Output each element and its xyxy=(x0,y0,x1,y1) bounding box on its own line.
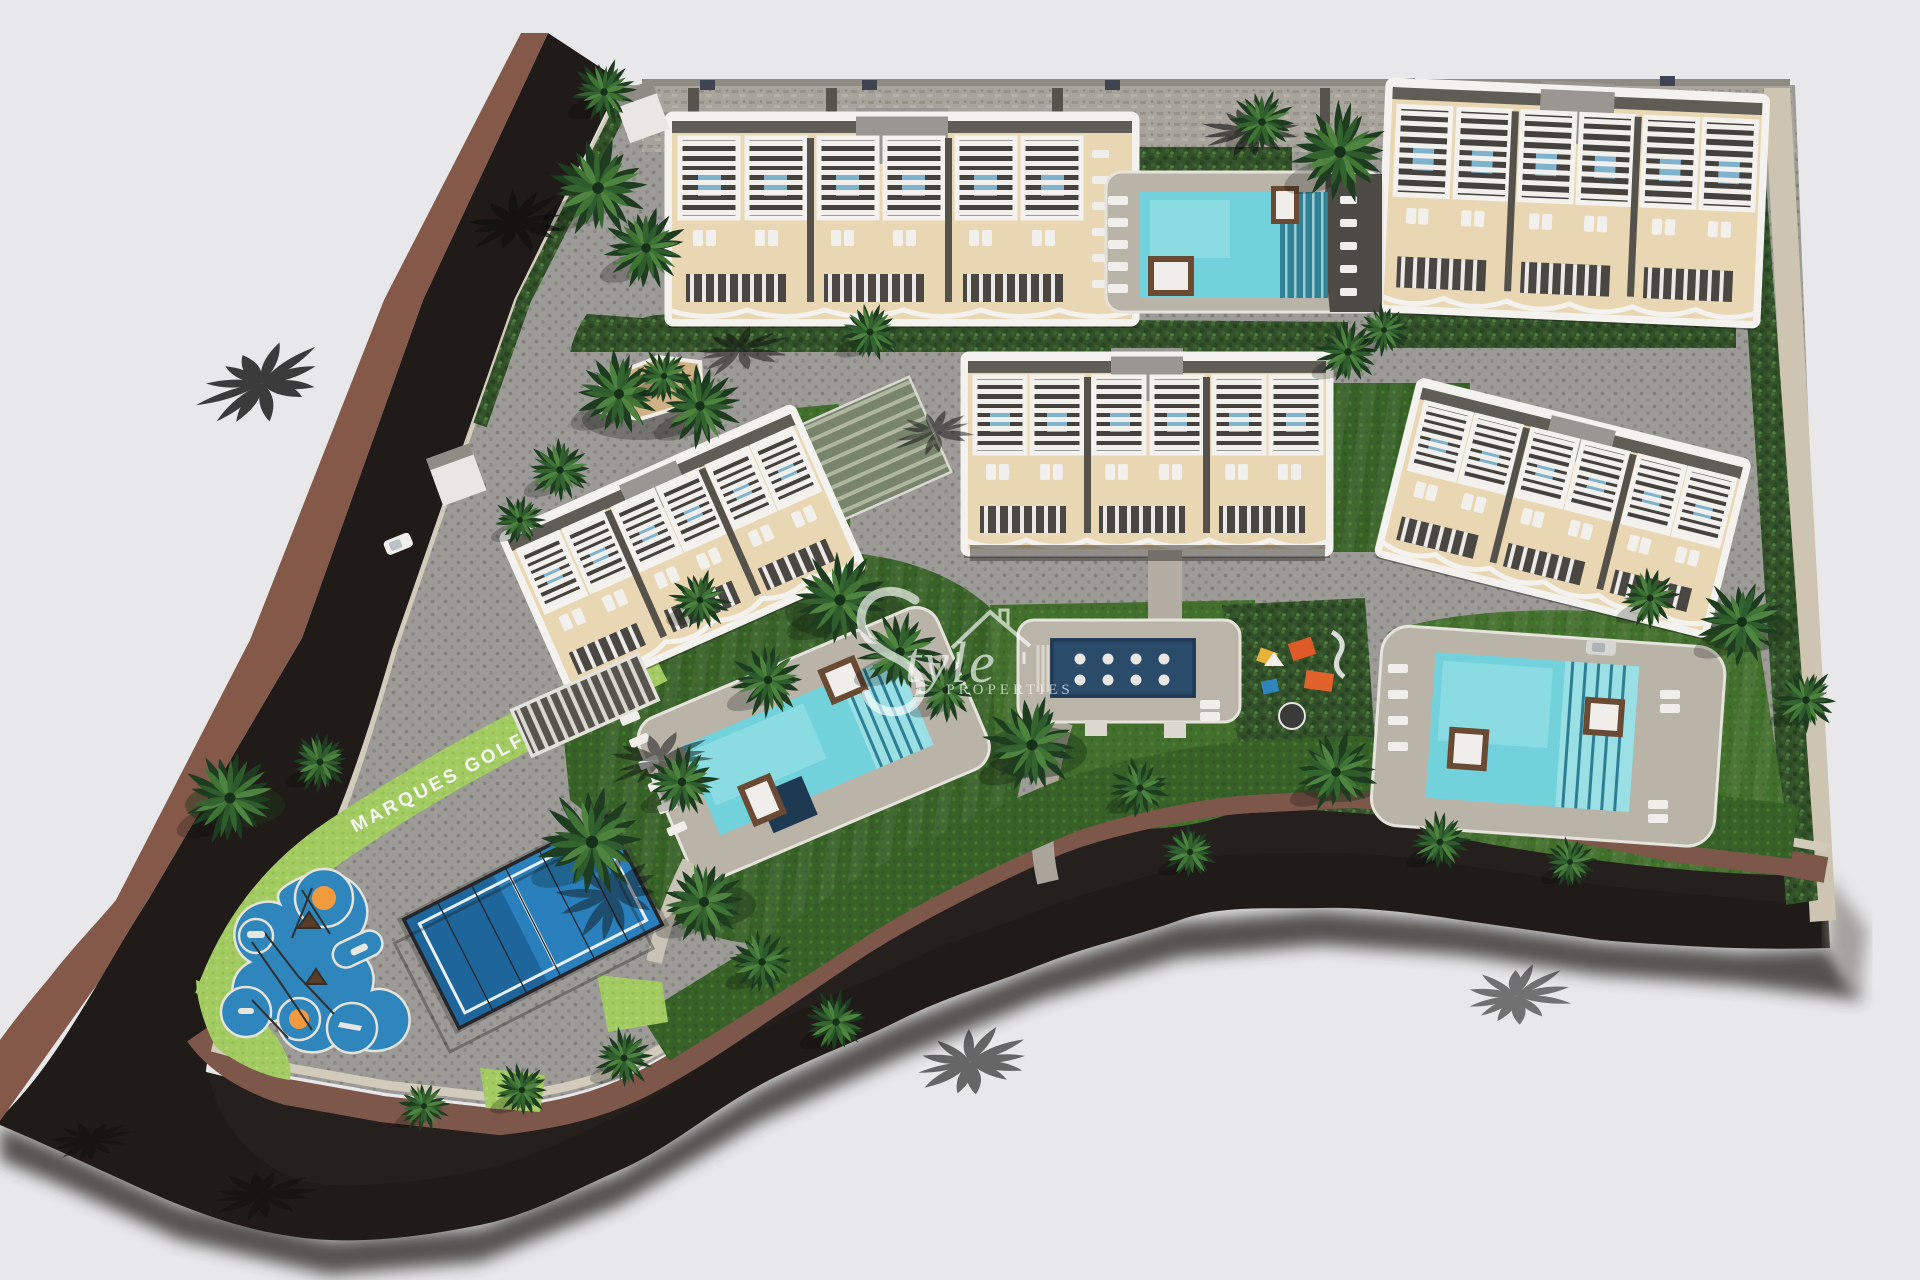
svg-text:PROPERTIES: PROPERTIES xyxy=(946,682,1073,698)
